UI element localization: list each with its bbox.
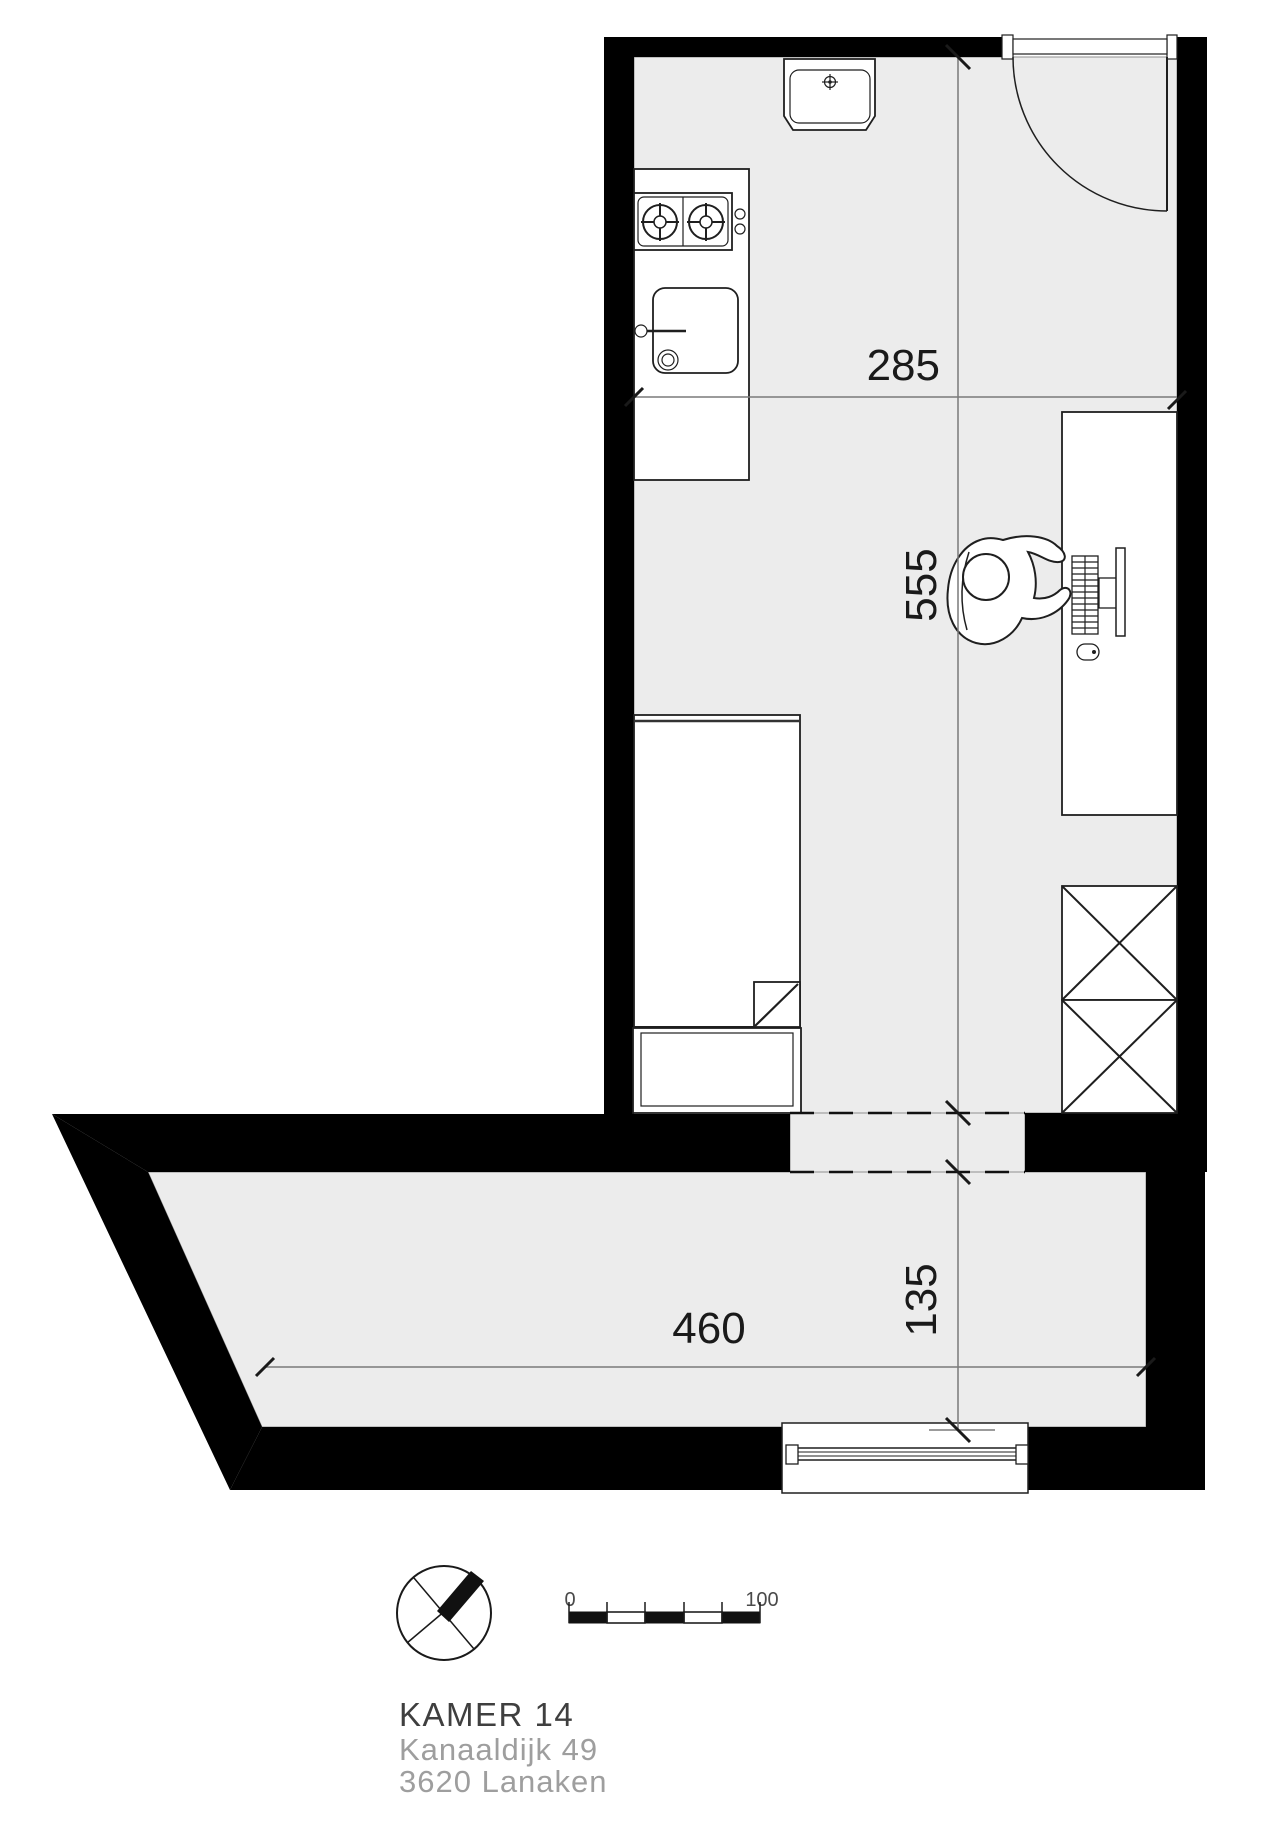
dimension-label-135: 135 bbox=[897, 1263, 946, 1336]
dimension-label-285: 285 bbox=[867, 341, 940, 390]
scale-max-label: 100 bbox=[745, 1589, 778, 1611]
upper-left-wall bbox=[604, 57, 634, 1115]
desk-icon bbox=[1062, 412, 1177, 815]
bottom-wall-right bbox=[1028, 1427, 1205, 1490]
floor-plan-page: 285 555 460 135 0 100 KAMER 14 Kanaaldij… bbox=[0, 0, 1271, 1824]
wardrobe-icon bbox=[1062, 886, 1177, 1113]
bed-icon bbox=[633, 715, 801, 1113]
upper-right-wall bbox=[1177, 37, 1207, 1172]
scale-min-label: 0 bbox=[564, 1589, 575, 1611]
title-block: KAMER 14 Kanaaldijk 49 3620 Lanaken bbox=[399, 1696, 608, 1799]
lower-room-floor bbox=[148, 1172, 1146, 1427]
top-wall bbox=[604, 37, 1002, 57]
bottom-wall-left bbox=[230, 1427, 782, 1490]
kitchen-counter bbox=[634, 169, 749, 480]
keyboard-icon bbox=[1072, 556, 1098, 634]
window-jamb-left bbox=[786, 1445, 798, 1464]
mouse-icon bbox=[1077, 644, 1099, 660]
door-jamb-left bbox=[1002, 35, 1013, 59]
dimension-label-555: 555 bbox=[897, 548, 946, 621]
door-leaf-closed bbox=[1013, 39, 1167, 54]
scale-bar: 0 100 bbox=[564, 1589, 778, 1623]
dimension-label-460: 460 bbox=[672, 1304, 745, 1353]
address-street: Kanaaldijk 49 bbox=[399, 1732, 598, 1767]
north-arrow-icon bbox=[397, 1566, 491, 1660]
north-needle bbox=[437, 1571, 484, 1622]
address-city: 3620 Lanaken bbox=[399, 1764, 608, 1799]
wash-basin-icon bbox=[784, 59, 875, 130]
window-jamb-right bbox=[1016, 1445, 1028, 1464]
window-icon bbox=[782, 1423, 1028, 1493]
stove-icon bbox=[634, 193, 745, 250]
person-head bbox=[963, 554, 1009, 600]
bed-foot-section bbox=[633, 1028, 801, 1113]
room-name: KAMER 14 bbox=[399, 1696, 574, 1733]
lower-room-top-wall bbox=[52, 1114, 790, 1172]
floor-plan-drawing: 285 555 460 135 0 100 KAMER 14 Kanaaldij… bbox=[0, 0, 1271, 1824]
door-jamb-right bbox=[1167, 35, 1177, 59]
passage-right-wall-chunk bbox=[1025, 1113, 1207, 1172]
passage-floor bbox=[790, 1113, 1025, 1172]
